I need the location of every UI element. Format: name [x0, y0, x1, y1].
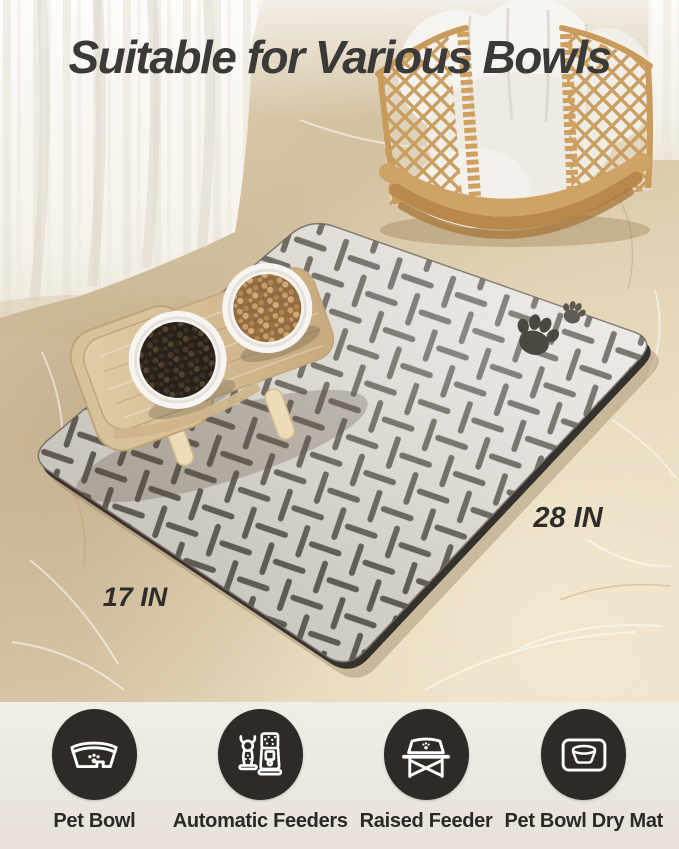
- feature-label: Pet Bowl Dry Mat: [504, 810, 663, 833]
- feature-item-raised-feeder: Raised Feeder: [348, 709, 505, 833]
- headline: Suitable for Various Bowls: [0, 30, 679, 84]
- feature-label: Automatic Feeders: [173, 810, 348, 833]
- feature-strip: Pet Bowl: [0, 702, 679, 849]
- feature-badge: [218, 709, 303, 800]
- feature-badge: [384, 709, 469, 800]
- pet-bowl-dry-mat-icon: [555, 726, 613, 784]
- product-image: Suitable for Various Bowls 28 IN 17 IN: [0, 0, 679, 849]
- mat-length-label: 28 IN: [498, 502, 638, 535]
- feature-badge: [52, 709, 137, 800]
- mat-width-label: 17 IN: [70, 582, 200, 613]
- feature-item-pet-bowl: Pet Bowl: [16, 709, 173, 833]
- feature-item-dry-mat: Pet Bowl Dry Mat: [504, 709, 663, 833]
- feature-item-automatic-feeders: Automatic Feeders: [173, 709, 348, 833]
- feature-badge: [541, 709, 626, 800]
- pet-bowl-icon: [65, 726, 123, 784]
- automatic-feeder-icon: [231, 726, 289, 784]
- raised-feeder-icon: [397, 726, 455, 784]
- feature-label: Raised Feeder: [360, 810, 493, 833]
- feature-label: Pet Bowl: [53, 810, 135, 833]
